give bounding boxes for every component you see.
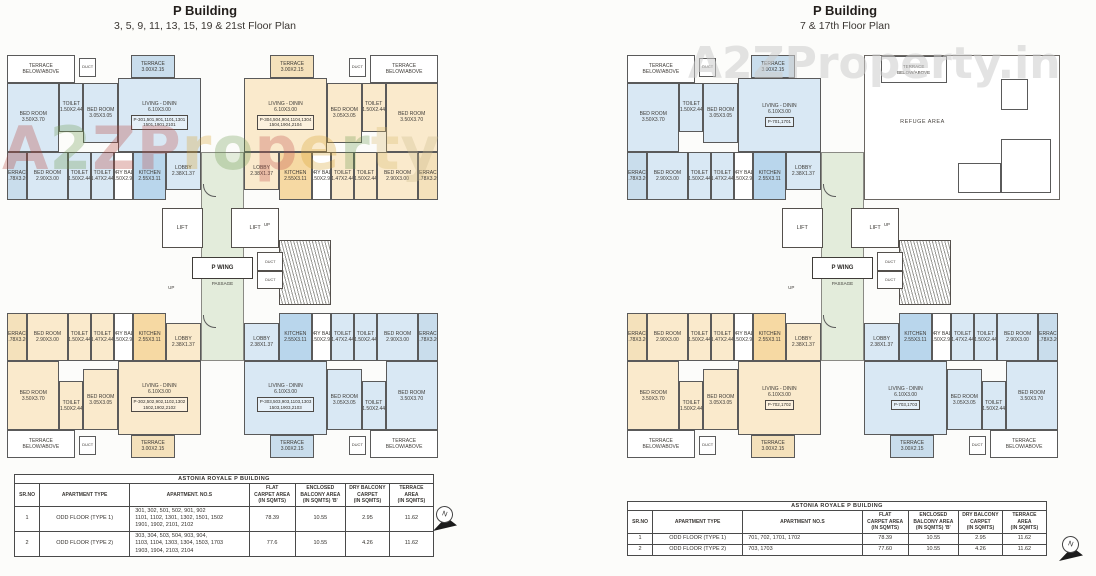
- room-label: BED ROOM 3.05X3.05: [707, 107, 734, 119]
- room-bedroom-1: BED ROOM 3.50X3.70: [627, 83, 679, 153]
- room-label: TOILET 1.50X2.44: [354, 331, 377, 343]
- room-label: DRY BAL. 1.50X2.95: [312, 170, 332, 182]
- column-header: APARTMENT TYPE: [39, 483, 129, 506]
- room-label: LIVING - DININ 6.10X3.00: [268, 101, 302, 113]
- room-toilet-3: TOILET 1.47X2.44: [711, 152, 734, 200]
- unit-number-box: P-701,1701: [765, 117, 794, 127]
- room-bedroom-3: BED ROOM 2.90X3.00: [27, 152, 68, 200]
- room-toilet-1: TOILET 1.50X2.44: [679, 83, 703, 132]
- table-cell: 4.26: [958, 544, 1002, 555]
- room-kitchen: KITCHEN 2.55X3.11: [279, 313, 312, 361]
- room-label: LOBBY 2.38X1.37: [870, 336, 893, 348]
- room-terrace-belowabove: TERRACE BELOW/ABOVE: [7, 430, 74, 458]
- left-plan-title-block: P Building 3, 5, 9, 11, 13, 15, 19 & 21s…: [5, 3, 405, 32]
- room-bedroom-2: BED ROOM 3.05X3.05: [83, 369, 118, 430]
- area-table-right: ASTONIA ROYALE P BUILDINGSR.NOAPARTMENT …: [627, 501, 1047, 556]
- room-label: BED ROOM 2.90X3.00: [384, 331, 411, 343]
- room-label: TOILET 1.47X2.44: [951, 331, 974, 343]
- column-header: TERRACE AREA (IN SQMTS): [389, 483, 433, 506]
- table-cell: 2: [14, 531, 39, 556]
- room-label: TERRACE 1.78X3.20: [1038, 331, 1058, 343]
- room-label: BED ROOM 3.50X3.70: [20, 111, 47, 123]
- unit-number-box: P-703,1703: [891, 400, 920, 410]
- room-label: BED ROOM 3.50X3.70: [640, 390, 667, 402]
- room-dry-balcony: DRY BAL. 1.50X2.95: [114, 152, 134, 200]
- table-cell: ODD FLOOR (TYPE 2): [652, 544, 742, 555]
- room-lobby: LOBBY 2.38X1.37: [864, 323, 899, 361]
- room-label: BED ROOM 2.90X3.00: [654, 331, 681, 343]
- lift-shaft: LIFT: [231, 208, 279, 248]
- room-lobby: LOBBY 2.38X1.37: [786, 323, 821, 361]
- room-label: BED ROOM 3.05X3.05: [951, 394, 978, 406]
- room-living-dining: LIVING - DININ 6.10X3.00P-302,502,902,11…: [118, 361, 201, 435]
- table-title: ASTONIA ROYALE P BUILDING: [14, 474, 433, 483]
- table-cell: 77.6: [249, 531, 295, 556]
- floor-plan-left: LIFT LIFT P WING PASSAGE UP UP DUCT DUCT…: [5, 55, 440, 458]
- column-header: SR.NO: [14, 483, 39, 506]
- table-cell: 10.55: [908, 533, 958, 544]
- room-label: BED ROOM 3.05X3.05: [87, 394, 114, 406]
- room-terrace-top: TERRACE 3.00X2.15: [131, 55, 175, 78]
- room-label: BED ROOM 3.50X3.70: [640, 111, 667, 123]
- room-bedroom-1: BED ROOM 3.50X3.70: [7, 361, 59, 431]
- column-header: FLAT CARPET AREA (IN SQMTS): [862, 510, 908, 533]
- duct-box: DUCT: [257, 271, 283, 289]
- room-bedroom-2: BED ROOM 3.05X3.05: [327, 369, 362, 430]
- unit-number-box: P-301,501,901,1101,1301 1501,1901,2101: [131, 115, 189, 130]
- room-label: DUCT: [82, 443, 93, 448]
- column-header: APARTMENT. NO.S: [129, 483, 248, 506]
- room-label: TERRACE BELOW/ABOVE: [23, 63, 60, 75]
- room-bedroom-3: BED ROOM 2.90X3.00: [377, 313, 418, 361]
- room-label: LIVING - DININ 6.10X3.00: [762, 103, 796, 115]
- terrace-belowabove: TERRACE BELOW/ABOVE: [881, 56, 947, 83]
- room-label: TOILET 1.50X2.44: [362, 101, 385, 113]
- column-header: DRY BALCONY CARPET (IN SQMTS): [958, 510, 1002, 533]
- room-toilet-2: TOILET 1.50X2.44: [354, 152, 377, 200]
- up-label: UP: [168, 285, 174, 290]
- table-cell: 10.55: [908, 544, 958, 555]
- table-cell: ODD FLOOR (TYPE 1): [39, 506, 129, 531]
- room-toilet-1: TOILET 1.50X2.44: [362, 381, 386, 430]
- unit-number-box: P-304,504,904,1104,1304 1504,1904,2104: [257, 115, 315, 130]
- room-toilet-2: TOILET 1.50X2.44: [68, 152, 91, 200]
- room-living-dining: LIVING - DININ 6.10X3.00P-303,503,903,11…: [244, 361, 327, 435]
- lift-shaft: LIFT: [851, 208, 899, 248]
- room-terrace-top: TERRACE 3.00X2.15: [270, 435, 314, 458]
- room-label: BED ROOM 2.90X3.00: [654, 170, 681, 182]
- up-label: UP: [884, 222, 890, 227]
- room-label: DUCT: [972, 443, 983, 448]
- room-toilet-1: TOILET 1.50X2.44: [362, 83, 386, 132]
- room-toilet-2: TOILET 1.50X2.44: [688, 313, 711, 361]
- column-header: TERRACE AREA (IN SQMTS): [1002, 510, 1046, 533]
- table-cell: 701, 702, 1701, 1702: [742, 533, 861, 544]
- room-bedroom-1: BED ROOM 3.50X3.70: [627, 361, 679, 431]
- area-table-left: ASTONIA ROYALE P BUILDINGSR.NOAPARTMENT …: [14, 474, 434, 557]
- room-terrace-side: TERRACE 1.78X3.20: [7, 313, 27, 361]
- refuge-room: [958, 163, 1001, 193]
- table-cell: 78.39: [249, 506, 295, 531]
- room-label: BED ROOM 2.90X3.00: [34, 331, 61, 343]
- room-label: LOBBY 2.38X1.37: [792, 336, 815, 348]
- room-label: TOILET 1.50X2.44: [688, 170, 711, 182]
- apartment-unit: TERRACE BELOW/ABOVEDUCTTERRACE 3.00X2.15…: [5, 55, 223, 200]
- table-cell: 78.39: [862, 533, 908, 544]
- room-label: TERRACE 3.00X2.15: [280, 61, 304, 73]
- room-label: TERRACE 3.00X2.15: [761, 61, 785, 73]
- apartment-unit: TERRACE BELOW/ABOVEDUCTTERRACE 3.00X2.15…: [625, 55, 843, 200]
- room-terrace-side: TERRACE 1.78X3.20: [627, 152, 647, 200]
- room-label: KITCHEN 2.55X3.11: [138, 331, 160, 343]
- room-terrace-belowabove: TERRACE BELOW/ABOVE: [627, 430, 694, 458]
- room-lobby: LOBBY 2.38X1.37: [786, 152, 821, 190]
- room-label: TERRACE 1.78X3.20: [627, 170, 647, 182]
- room-label: LIVING - DININ 6.10X3.00: [142, 101, 176, 113]
- table-cell: 2.95: [958, 533, 1002, 544]
- room-terrace-top: TERRACE 3.00X2.15: [751, 435, 795, 458]
- room-label: TOILET 1.50X2.44: [680, 101, 703, 113]
- room-label: TERRACE 3.00X2.15: [141, 440, 165, 452]
- room-terrace-belowabove: TERRACE BELOW/ABOVE: [7, 55, 74, 83]
- table-title: ASTONIA ROYALE P BUILDING: [627, 501, 1046, 510]
- room-label: TERRACE 1.78X3.20: [7, 170, 27, 182]
- page-subtitle: 7 & 17th Floor Plan: [645, 20, 1045, 32]
- room-lobby: LOBBY 2.38X1.37: [166, 323, 201, 361]
- table-cell: 301, 302, 501, 502, 901, 902 1101, 1102,…: [129, 506, 248, 531]
- room-bedroom-1: BED ROOM 3.50X3.70: [386, 361, 438, 431]
- room-label: BED ROOM 3.05X3.05: [331, 107, 358, 119]
- room-toilet-3: TOILET 1.47X2.44: [331, 313, 354, 361]
- room-toilet-2: TOILET 1.50X2.44: [68, 313, 91, 361]
- duct-box: DUCT: [877, 252, 903, 270]
- table-cell: 303, 304, 503, 504, 903, 904, 1103, 1104…: [129, 531, 248, 556]
- unit-number-box: P-303,503,903,1103,1303 1503,1903,2103: [257, 397, 315, 412]
- room-label: TOILET 1.50X2.44: [688, 331, 711, 343]
- room-terrace-side: TERRACE 1.78X3.20: [1038, 313, 1058, 361]
- table-cell: 10.55: [295, 506, 345, 531]
- table-cell: 1: [14, 506, 39, 531]
- column-header: APARTMENT NO.S: [742, 510, 861, 533]
- room-label: TOILET 1.47X2.44: [711, 170, 734, 182]
- staircase: [899, 240, 951, 304]
- room-kitchen: KITCHEN 2.55X3.11: [279, 152, 312, 200]
- room-label: TOILET 1.47X2.44: [91, 331, 114, 343]
- room-living-dining: LIVING - DININ 6.10X3.00P-701,1701: [738, 78, 821, 152]
- room-dry-balcony: DRY BAL. 1.50X2.95: [312, 152, 332, 200]
- room-duct: DUCT: [969, 436, 986, 455]
- room-label: DUCT: [352, 65, 363, 70]
- room-duct: DUCT: [79, 436, 96, 455]
- room-label: BED ROOM 3.05X3.05: [331, 394, 358, 406]
- room-bedroom-3: BED ROOM 2.90X3.00: [647, 152, 688, 200]
- passage-label: PASSAGE: [812, 281, 873, 286]
- refuge-area: TERRACE BELOW/ABOVE REFUGE AREA: [864, 55, 1060, 200]
- room-label: KITCHEN 2.55X3.11: [758, 331, 780, 343]
- room-bedroom-1: BED ROOM 3.50X3.70: [1006, 361, 1058, 431]
- room-label: TERRACE BELOW/ABOVE: [897, 64, 930, 75]
- room-lobby: LOBBY 2.38X1.37: [244, 152, 279, 190]
- up-label: UP: [788, 285, 794, 290]
- room-terrace-top: TERRACE 3.00X2.15: [751, 55, 795, 78]
- room-label: DRY BAL. 1.50X2.95: [932, 331, 952, 343]
- room-label: LIVING - DININ 6.10X3.00: [888, 386, 922, 398]
- refuge-room: [1001, 79, 1028, 110]
- room-terrace-side: TERRACE 1.78X3.20: [627, 313, 647, 361]
- room-terrace-side: TERRACE 1.78X3.20: [418, 313, 438, 361]
- room-label: DUCT: [352, 443, 363, 448]
- room-kitchen: KITCHEN 2.55X3.11: [133, 313, 166, 361]
- room-duct: DUCT: [79, 58, 96, 77]
- room-label: DUCT: [702, 443, 713, 448]
- apartment-unit: TERRACE BELOW/ABOVEDUCTTERRACE 3.00X2.15…: [843, 313, 1061, 458]
- room-label: DRY BAL. 1.50X2.95: [114, 331, 134, 343]
- room-terrace-belowabove: TERRACE BELOW/ABOVE: [990, 430, 1057, 458]
- table-cell: 703, 1703: [742, 544, 861, 555]
- apartment-unit: TERRACE BELOW/ABOVEDUCTTERRACE 3.00X2.15…: [223, 55, 441, 200]
- room-label: TOILET 1.50X2.44: [974, 331, 997, 343]
- room-label: TOILET 1.50X2.44: [60, 400, 83, 412]
- room-label: DRY BAL. 1.50X2.95: [312, 331, 332, 343]
- apartment-unit: TERRACE BELOW/ABOVEDUCTTERRACE 3.00X2.15…: [223, 313, 441, 458]
- room-toilet-3: TOILET 1.47X2.44: [91, 313, 114, 361]
- duct-box: DUCT: [877, 271, 903, 289]
- room-label: TERRACE BELOW/ABOVE: [386, 438, 423, 450]
- room-toilet-2: TOILET 1.50X2.44: [354, 313, 377, 361]
- room-label: LIVING - DININ 6.10X3.00: [268, 383, 302, 395]
- room-label: TERRACE 3.00X2.15: [141, 61, 165, 73]
- room-label: BED ROOM 3.05X3.05: [707, 394, 734, 406]
- room-label: TERRACE 3.00X2.15: [900, 440, 924, 452]
- room-toilet-3: TOILET 1.47X2.44: [711, 313, 734, 361]
- room-label: LIVING - DININ 6.10X3.00: [762, 386, 796, 398]
- table-cell: 11.62: [389, 506, 433, 531]
- room-label: BED ROOM 2.90X3.00: [384, 170, 411, 182]
- room-toilet-3: TOILET 1.47X2.44: [331, 152, 354, 200]
- room-label: TERRACE BELOW/ABOVE: [1006, 438, 1043, 450]
- table-cell: 11.62: [389, 531, 433, 556]
- room-bedroom-3: BED ROOM 2.90X3.00: [27, 313, 68, 361]
- room-terrace-top: TERRACE 3.00X2.15: [131, 435, 175, 458]
- room-kitchen: KITCHEN 2.55X3.11: [899, 313, 932, 361]
- room-toilet-1: TOILET 1.50X2.44: [982, 381, 1006, 430]
- room-label: TOILET 1.47X2.44: [711, 331, 734, 343]
- table-cell: 2.95: [345, 506, 389, 531]
- table-cell: ODD FLOOR (TYPE 2): [39, 531, 129, 556]
- room-duct: DUCT: [699, 58, 716, 77]
- column-header: APARTMENT TYPE: [652, 510, 742, 533]
- room-living-dining: LIVING - DININ 6.10X3.00P-702,1702: [738, 361, 821, 435]
- room-label: BED ROOM 3.05X3.05: [87, 107, 114, 119]
- room-kitchen: KITCHEN 2.55X3.11: [753, 313, 786, 361]
- room-terrace-top: TERRACE 3.00X2.15: [890, 435, 934, 458]
- room-dry-balcony: DRY BAL. 1.50X2.95: [734, 152, 754, 200]
- column-header: FLAT CARPET AREA (IN SQMTS): [249, 483, 295, 506]
- passage-label: PASSAGE: [192, 281, 253, 286]
- north-arrow-icon: N: [1056, 535, 1086, 565]
- room-label: KITCHEN 2.55X3.11: [758, 170, 780, 182]
- room-living-dining: LIVING - DININ 6.10X3.00P-703,1703: [864, 361, 947, 435]
- room-label: TERRACE 3.00X2.15: [280, 440, 304, 452]
- room-label: DRY BAL. 1.50X2.95: [734, 170, 754, 182]
- room-label: BED ROOM 3.50X3.70: [20, 390, 47, 402]
- room-label: TERRACE 3.00X2.15: [761, 440, 785, 452]
- room-label: BED ROOM 3.50X3.70: [398, 390, 425, 402]
- room-terrace-belowabove: TERRACE BELOW/ABOVE: [627, 55, 694, 83]
- room-bedroom-2: BED ROOM 3.05X3.05: [703, 369, 738, 430]
- apartment-unit: TERRACE BELOW/ABOVEDUCTTERRACE 3.00X2.15…: [5, 313, 223, 458]
- column-header: DRY BALCONY CARPET (IN SQMTS): [345, 483, 389, 506]
- room-label: LOBBY 2.38X1.37: [250, 336, 273, 348]
- room-label: TOILET 1.50X2.44: [68, 331, 91, 343]
- room-label: TOILET 1.50X2.44: [68, 170, 91, 182]
- page-title: P Building: [5, 3, 405, 18]
- room-label: LOBBY 2.38X1.37: [172, 165, 195, 177]
- room-duct: DUCT: [699, 436, 716, 455]
- room-toilet-1: TOILET 1.50X2.44: [59, 83, 83, 132]
- room-label: TERRACE BELOW/ABOVE: [386, 63, 423, 75]
- room-bedroom-3: BED ROOM 2.90X3.00: [647, 313, 688, 361]
- room-label: TOILET 1.50X2.44: [60, 101, 83, 113]
- room-bedroom-1: BED ROOM 3.50X3.70: [386, 83, 438, 153]
- room-label: TOILET 1.47X2.44: [331, 331, 354, 343]
- lift-shaft: LIFT: [782, 208, 823, 248]
- room-living-dining: LIVING - DININ 6.10X3.00P-304,504,904,11…: [244, 78, 327, 152]
- table-cell: 4.26: [345, 531, 389, 556]
- room-label: TERRACE 1.78X3.20: [7, 331, 27, 343]
- room-label: TOILET 1.47X2.44: [331, 170, 354, 182]
- room-label: BED ROOM 2.90X3.00: [1004, 331, 1031, 343]
- wing-label-box: P WING: [192, 257, 253, 279]
- room-dry-balcony: DRY BAL. 1.50X2.95: [734, 313, 754, 361]
- page-title: P Building: [645, 3, 1045, 18]
- room-label: DRY BAL. 1.50X2.95: [114, 170, 134, 182]
- room-label: TOILET 1.50X2.44: [354, 170, 377, 182]
- page-subtitle: 3, 5, 9, 11, 13, 15, 19 & 21st Floor Pla…: [5, 20, 405, 32]
- room-kitchen: KITCHEN 2.55X3.11: [133, 152, 166, 200]
- room-kitchen: KITCHEN 2.55X3.11: [753, 152, 786, 200]
- room-label: TERRACE 1.78X3.20: [418, 170, 438, 182]
- room-label: TERRACE BELOW/ABOVE: [643, 438, 680, 450]
- refuge-room: [1001, 139, 1051, 193]
- room-label: TERRACE BELOW/ABOVE: [23, 438, 60, 450]
- refuge-label: REFUGE AREA: [900, 119, 945, 125]
- room-bedroom-3: BED ROOM 2.90X3.00: [997, 313, 1038, 361]
- north-arrow-icon: N: [430, 505, 460, 535]
- room-toilet-2: TOILET 1.50X2.44: [688, 152, 711, 200]
- room-label: LOBBY 2.38X1.37: [792, 165, 815, 177]
- room-bedroom-2: BED ROOM 3.05X3.05: [947, 369, 982, 430]
- floor-plan-sheet: A2ZProperty A2ZProperty.in P Building 3,…: [0, 0, 1096, 576]
- room-label: TERRACE BELOW/ABOVE: [643, 63, 680, 75]
- room-bedroom-1: BED ROOM 3.50X3.70: [7, 83, 59, 153]
- room-terrace-belowabove: TERRACE BELOW/ABOVE: [370, 430, 437, 458]
- room-label: TOILET 1.50X2.44: [982, 400, 1005, 412]
- room-label: BED ROOM 2.90X3.00: [34, 170, 61, 182]
- table-cell: 2: [627, 544, 652, 555]
- lift-shaft: LIFT: [162, 208, 203, 248]
- room-label: LOBBY 2.38X1.37: [172, 336, 195, 348]
- room-bedroom-2: BED ROOM 3.05X3.05: [83, 83, 118, 144]
- room-terrace-side: TERRACE 1.78X3.20: [7, 152, 27, 200]
- room-label: KITCHEN 2.55X3.11: [284, 331, 306, 343]
- table-cell: ODD FLOOR (TYPE 1): [652, 533, 742, 544]
- room-living-dining: LIVING - DININ 6.10X3.00P-301,501,901,11…: [118, 78, 201, 152]
- room-lobby: LOBBY 2.38X1.37: [244, 323, 279, 361]
- table-cell: 77.60: [862, 544, 908, 555]
- staircase: [279, 240, 331, 304]
- unit-number-box: P-702,1702: [765, 400, 794, 410]
- room-label: DUCT: [702, 65, 713, 70]
- room-toilet-1: TOILET 1.50X2.44: [59, 381, 83, 430]
- room-lobby: LOBBY 2.38X1.37: [166, 152, 201, 190]
- right-plan-title-block: P Building 7 & 17th Floor Plan: [645, 3, 1045, 32]
- room-dry-balcony: DRY BAL. 1.50X2.95: [932, 313, 952, 361]
- table-cell: 10.55: [295, 531, 345, 556]
- room-label: DRY BAL. 1.50X2.95: [734, 331, 754, 343]
- column-header: ENCLOSED BALCONY AREA (IN SQMTS) 'B': [295, 483, 345, 506]
- room-duct: DUCT: [349, 58, 366, 77]
- room-terrace-side: TERRACE 1.78X3.20: [418, 152, 438, 200]
- room-toilet-3: TOILET 1.47X2.44: [951, 313, 974, 361]
- apartment-unit: TERRACE BELOW/ABOVEDUCTTERRACE 3.00X2.15…: [625, 313, 843, 458]
- room-label: TERRACE 1.78X3.20: [627, 331, 647, 343]
- room-dry-balcony: DRY BAL. 1.50X2.95: [114, 313, 134, 361]
- room-label: BED ROOM 3.50X3.70: [398, 111, 425, 123]
- room-label: TOILET 1.47X2.44: [91, 170, 114, 182]
- wing-label-box: P WING: [812, 257, 873, 279]
- room-label: KITCHEN 2.55X3.11: [904, 331, 926, 343]
- room-label: TOILET 1.50X2.44: [362, 400, 385, 412]
- table-cell: 11.62: [1002, 544, 1046, 555]
- floor-plan-right: TERRACE BELOW/ABOVE REFUGE AREA LIFT LIF…: [625, 55, 1060, 458]
- room-label: KITCHEN 2.55X3.11: [138, 170, 160, 182]
- room-dry-balcony: DRY BAL. 1.50X2.95: [312, 313, 332, 361]
- room-terrace-top: TERRACE 3.00X2.15: [270, 55, 314, 78]
- room-duct: DUCT: [349, 436, 366, 455]
- room-toilet-1: TOILET 1.50X2.44: [679, 381, 703, 430]
- room-toilet-2: TOILET 1.50X2.44: [974, 313, 997, 361]
- duct-box: DUCT: [257, 252, 283, 270]
- room-label: TOILET 1.50X2.44: [680, 400, 703, 412]
- room-bedroom-3: BED ROOM 2.90X3.00: [377, 152, 418, 200]
- room-label: TERRACE 1.78X3.20: [418, 331, 438, 343]
- room-bedroom-2: BED ROOM 3.05X3.05: [327, 83, 362, 144]
- room-bedroom-2: BED ROOM 3.05X3.05: [703, 83, 738, 144]
- room-label: KITCHEN 2.55X3.11: [284, 170, 306, 182]
- room-label: BED ROOM 3.50X3.70: [1018, 390, 1045, 402]
- room-label: LIVING - DININ 6.10X3.00: [142, 383, 176, 395]
- room-toilet-3: TOILET 1.47X2.44: [91, 152, 114, 200]
- column-header: ENCLOSED BALCONY AREA (IN SQMTS) 'B': [908, 510, 958, 533]
- table-cell: 11.62: [1002, 533, 1046, 544]
- table-cell: 1: [627, 533, 652, 544]
- room-label: DUCT: [82, 65, 93, 70]
- column-header: SR.NO: [627, 510, 652, 533]
- room-terrace-belowabove: TERRACE BELOW/ABOVE: [370, 55, 437, 83]
- up-label: UP: [264, 222, 270, 227]
- room-label: LOBBY 2.38X1.37: [250, 165, 273, 177]
- unit-number-box: P-302,502,902,1102,1302 1502,1902,2102: [131, 397, 189, 412]
